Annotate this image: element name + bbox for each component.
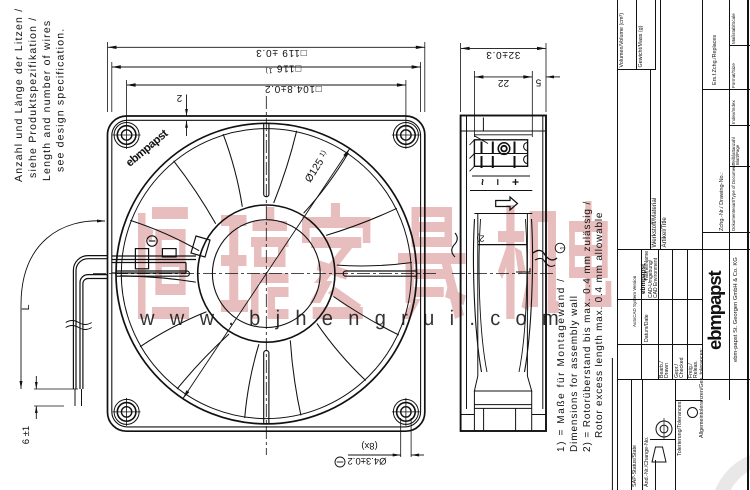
svg-text:1: 1 <box>560 246 567 250</box>
svg-text:L: L <box>20 304 32 310</box>
svg-text:2: 2 <box>176 92 182 103</box>
svg-text:32±0.3: 32±0.3 <box>486 49 521 60</box>
svg-text:□119 ±0.3: □119 ±0.3 <box>255 47 306 58</box>
svg-text:Dimensions for assembly wall: Dimensions for assembly wall <box>569 295 580 452</box>
svg-text:22: 22 <box>498 77 510 88</box>
svg-text:siehe Produktspezifikation /: siehe Produktspezifikation / <box>27 17 39 178</box>
svg-text:□104.8±0.2: □104.8±0.2 <box>264 83 321 94</box>
svg-text:Ø4.3±0.2: Ø4.3±0.2 <box>347 455 386 466</box>
svg-text:5: 5 <box>535 77 541 88</box>
svg-text:1) = Maße für Montagewand /: 1) = Maße für Montagewand / <box>556 277 567 452</box>
svg-text:–: – <box>490 178 504 185</box>
svg-text:Anzahl und Länge der Litzen /: Anzahl und Länge der Litzen / <box>13 8 25 182</box>
svg-text:Length and number of wires: Length and number of wires <box>41 20 53 181</box>
svg-text:(8x): (8x) <box>361 440 377 451</box>
svg-text:+: + <box>509 178 523 185</box>
svg-text:Rotor excess length max. 0.4 m: Rotor excess length max. 0.4 mm allowabl… <box>594 212 605 438</box>
svg-text:~: ~ <box>476 178 490 185</box>
svg-text:2): 2) <box>476 234 484 244</box>
svg-text:see design specification.: see design specification. <box>55 28 67 172</box>
svg-text:2) = Rotorüberstand bis max. 0: 2) = Rotorüberstand bis max. 0.4 mm zulä… <box>582 201 593 452</box>
svg-text:6 ±1: 6 ±1 <box>21 426 32 444</box>
svg-text:www.bjhengrui.com: www.bjhengrui.com <box>139 307 574 330</box>
